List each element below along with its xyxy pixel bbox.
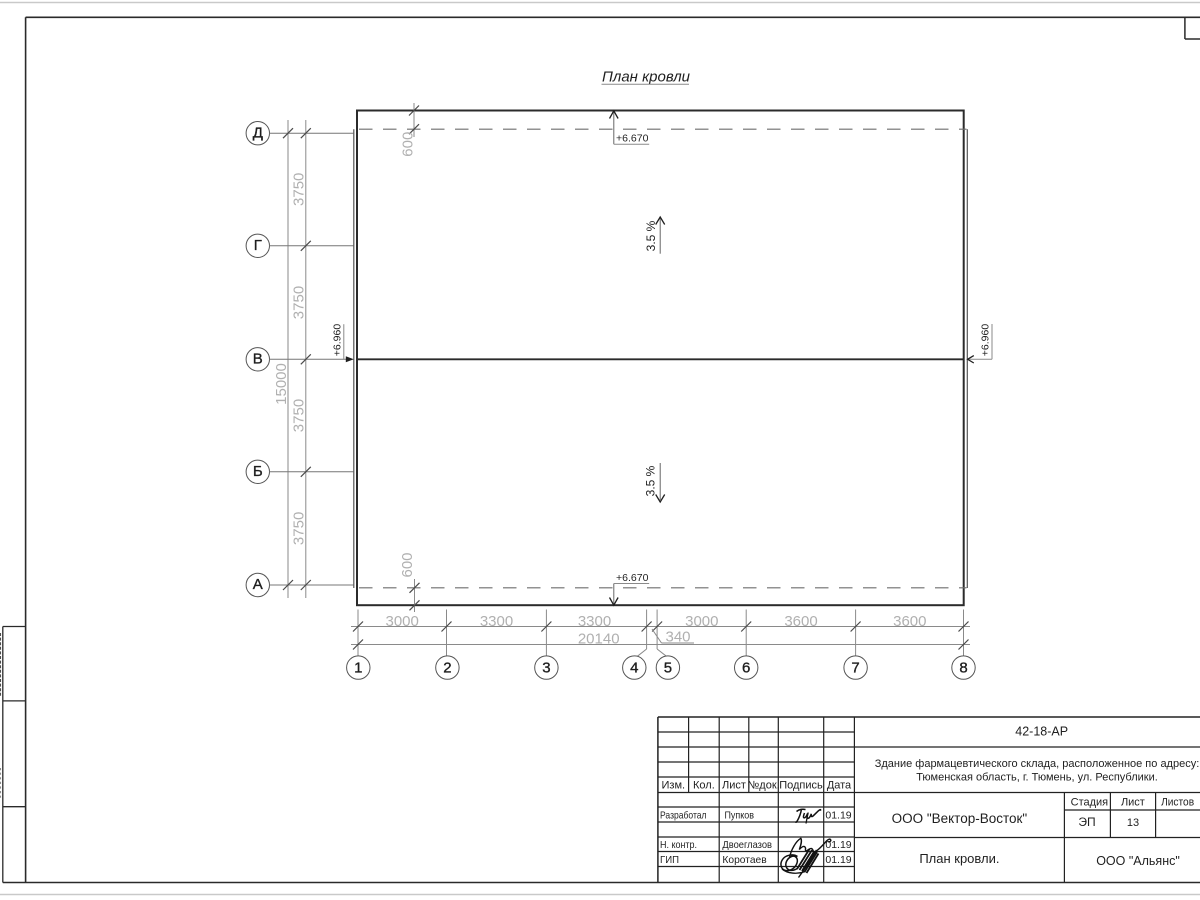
svg-text:42-18-АР: 42-18-АР: [1015, 725, 1068, 739]
svg-text:600: 600: [399, 552, 416, 577]
svg-text:ЭП: ЭП: [1078, 815, 1095, 829]
svg-text:3750: 3750: [291, 173, 308, 206]
svg-text:В: В: [253, 351, 263, 368]
svg-text:3750: 3750: [291, 399, 308, 432]
svg-text:Дата: Дата: [827, 780, 852, 792]
svg-text:Лист: Лист: [1121, 797, 1145, 809]
svg-text:3300: 3300: [578, 613, 611, 630]
svg-text:8: 8: [959, 660, 967, 677]
svg-text:3000: 3000: [685, 613, 718, 630]
svg-text:01.19: 01.19: [825, 810, 851, 822]
svg-text:3.5 %: 3.5 %: [644, 220, 658, 251]
svg-text:+6.960: +6.960: [979, 324, 991, 357]
svg-text:2: 2: [443, 660, 451, 677]
svg-text:5: 5: [664, 660, 672, 677]
svg-text:13: 13: [1127, 817, 1139, 829]
svg-text:1: 1: [354, 660, 362, 677]
svg-text:3300: 3300: [480, 613, 513, 630]
svg-text:3: 3: [542, 660, 550, 677]
svg-text:3600: 3600: [784, 613, 817, 630]
svg-text:Здание фармацевтического склад: Здание фармацевтического склада, располо…: [875, 758, 1200, 770]
svg-text:Д: Д: [253, 124, 263, 141]
svg-text:3750: 3750: [291, 286, 308, 319]
svg-text:Изм.: Изм.: [662, 780, 686, 792]
svg-text:План кровли.: План кровли.: [919, 851, 999, 866]
svg-text:Б: Б: [253, 463, 263, 480]
svg-text:Подпись: Подпись: [779, 780, 823, 792]
svg-text:6: 6: [742, 660, 750, 677]
svg-text:Г: Г: [254, 237, 262, 254]
svg-text:Листов: Листов: [1161, 797, 1194, 809]
svg-text:Разработал: Разработал: [660, 810, 707, 822]
svg-text:+6.670: +6.670: [616, 572, 649, 584]
svg-text:+6.960: +6.960: [331, 324, 343, 357]
svg-text:ООО "Альянс": ООО "Альянс": [1096, 854, 1180, 868]
svg-text:План кровли: План кровли: [602, 69, 691, 86]
svg-text:ГИП: ГИП: [660, 854, 679, 866]
svg-text:3600: 3600: [893, 613, 926, 630]
svg-text:Кол.: Кол.: [693, 780, 715, 792]
svg-text:4: 4: [630, 660, 638, 677]
svg-text:3.5 %: 3.5 %: [643, 465, 657, 496]
svg-text:7: 7: [851, 660, 859, 677]
svg-text:600: 600: [400, 132, 417, 157]
svg-text:15000: 15000: [273, 363, 290, 405]
svg-text:Лист: Лист: [722, 780, 746, 792]
svg-text:№док.: №док.: [747, 780, 779, 792]
svg-text:01.19: 01.19: [825, 839, 851, 851]
svg-text:3750: 3750: [291, 512, 308, 545]
svg-text:Двоеглазов: Двоеглазов: [722, 839, 772, 851]
svg-text:Стадия: Стадия: [1071, 797, 1109, 809]
svg-text:А: А: [253, 576, 263, 593]
svg-text:Пупков: Пупков: [725, 810, 755, 822]
svg-text:01.19: 01.19: [825, 854, 851, 866]
svg-text:3000: 3000: [386, 613, 419, 630]
svg-text:Коротаев: Коротаев: [722, 854, 767, 866]
svg-text:20140: 20140: [578, 631, 620, 648]
svg-text:Н. контр.: Н. контр.: [660, 839, 697, 851]
svg-text:+6.670: +6.670: [616, 133, 649, 145]
svg-text:Тюменская область, г. Тюмень,: Тюменская область, г. Тюмень, ул. Респуб…: [916, 772, 1158, 784]
svg-text:ООО "Вектор-Восток": ООО "Вектор-Восток": [892, 811, 1028, 826]
